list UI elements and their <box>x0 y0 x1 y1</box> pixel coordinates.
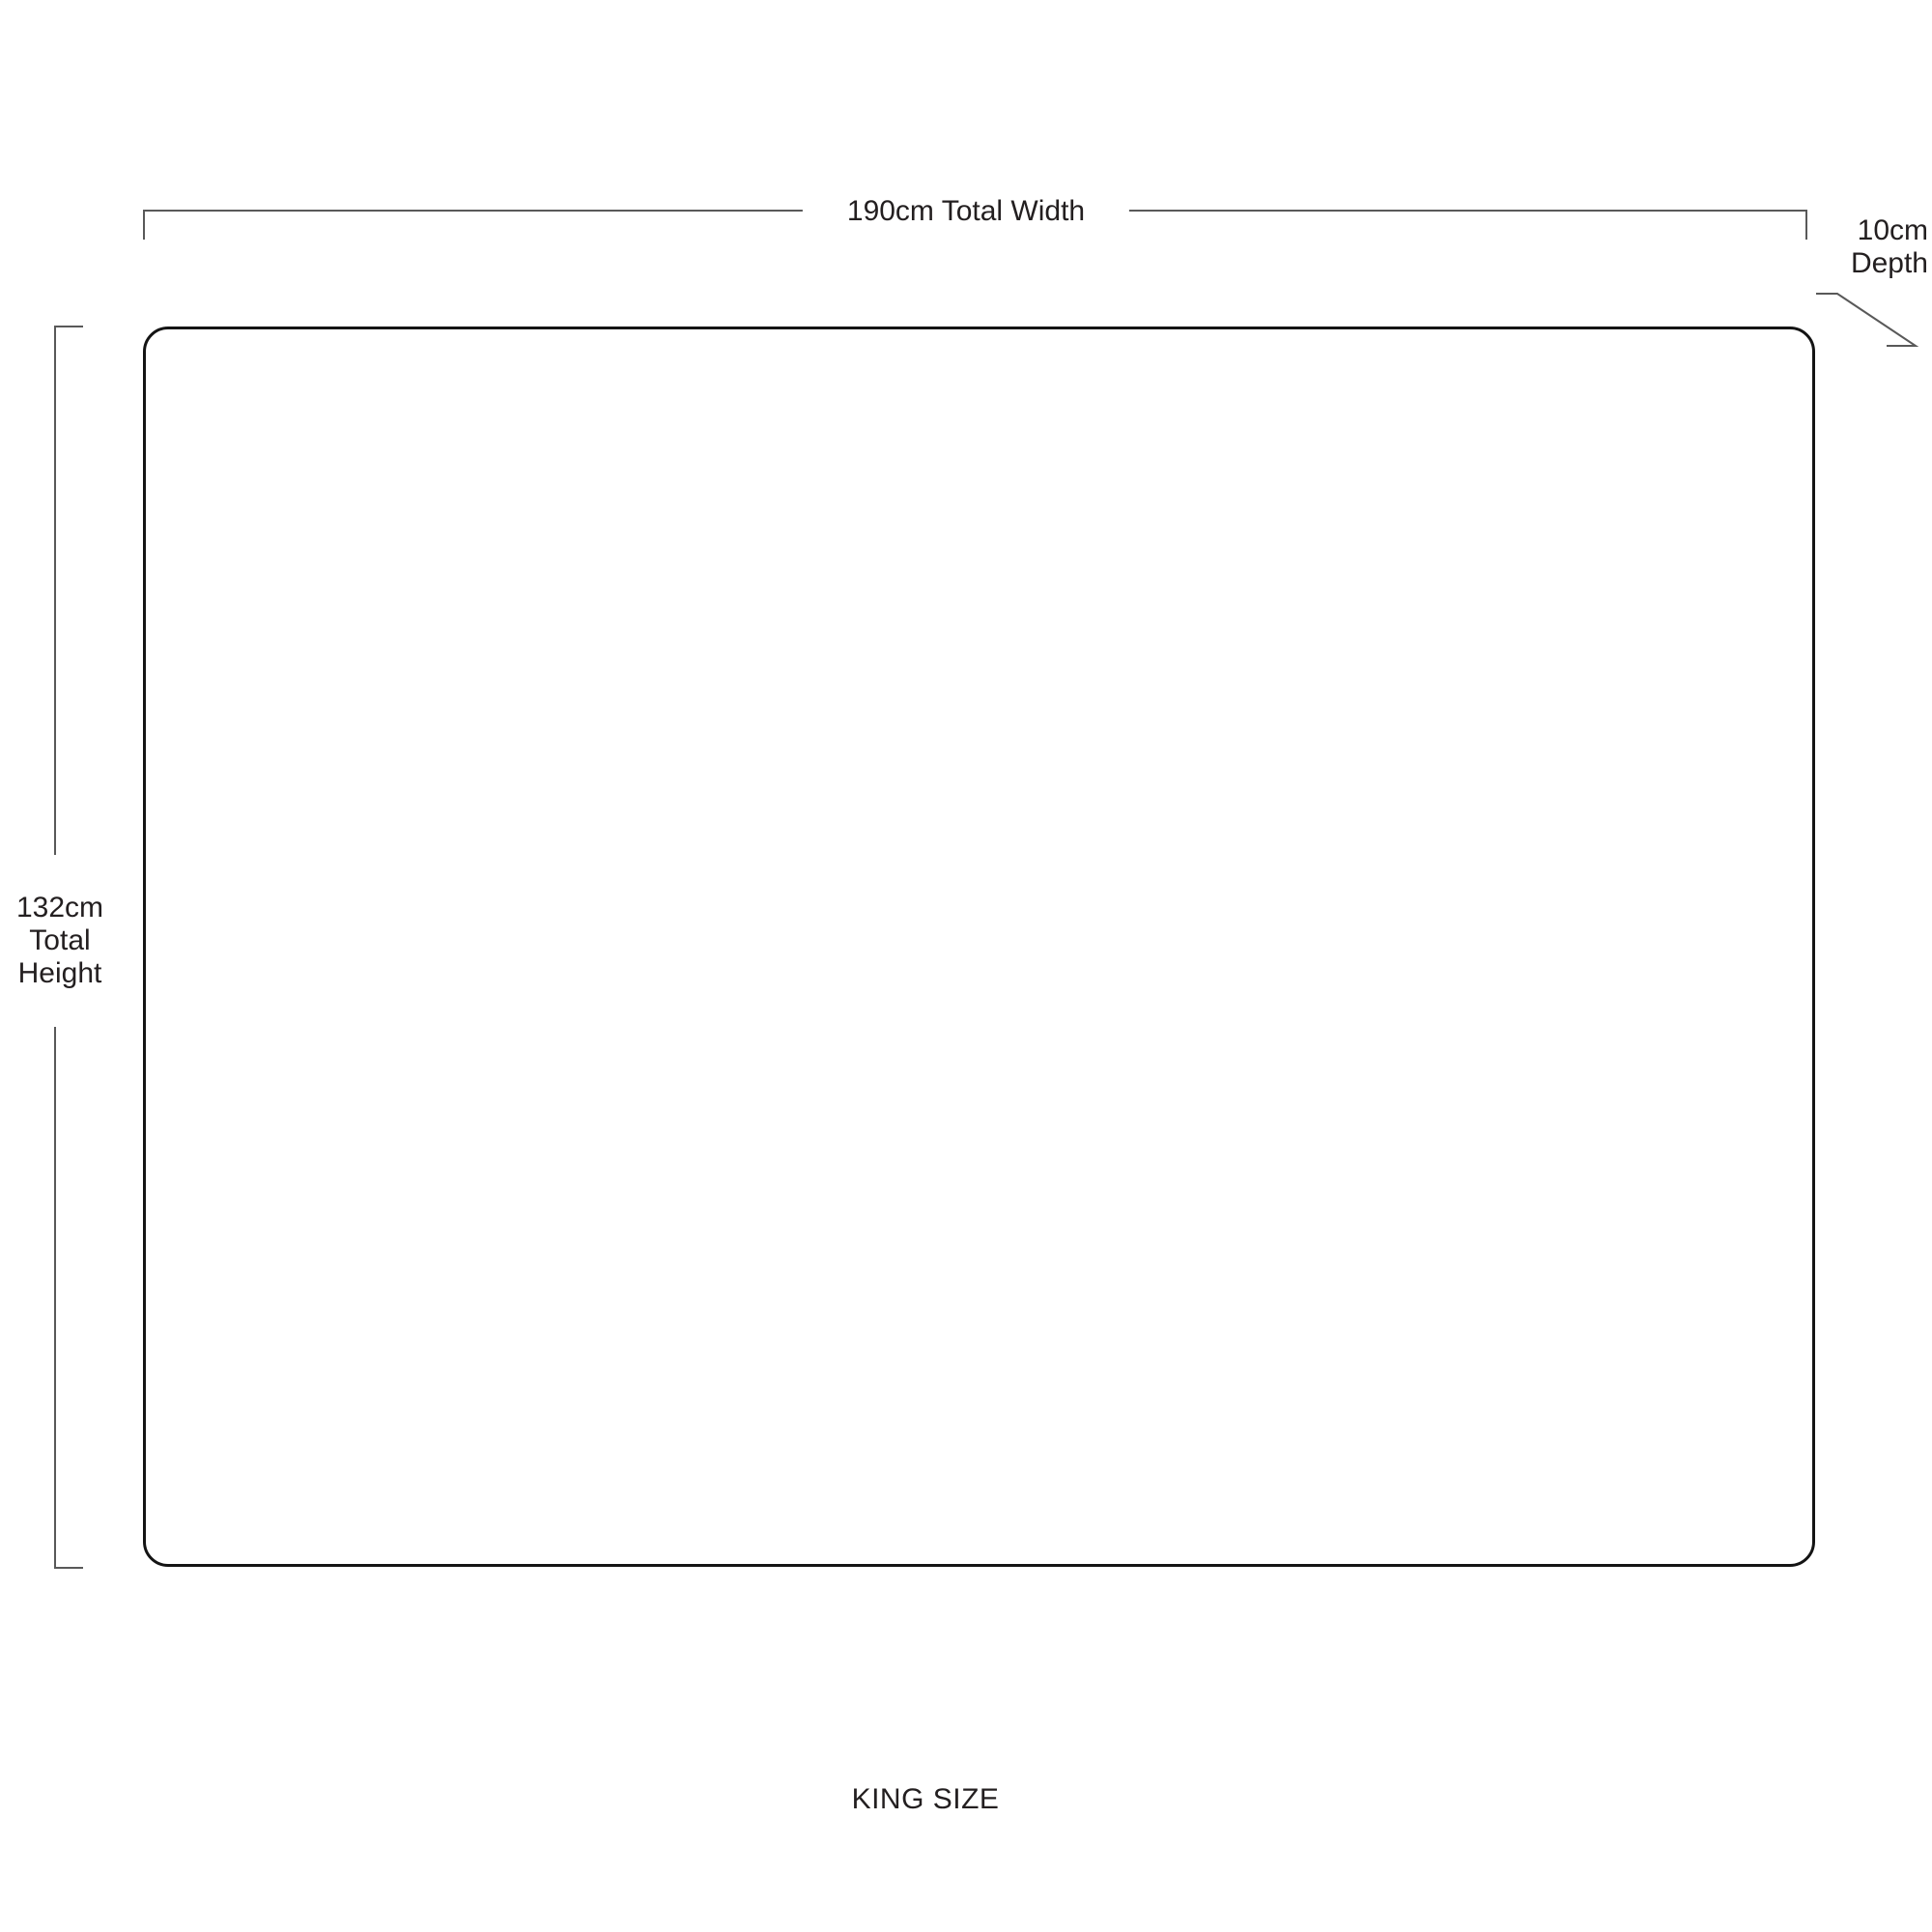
depth-label-line-2: Depth <box>1851 247 1928 280</box>
depth-leader-line <box>1806 285 1932 357</box>
height-label-line-2: Total <box>16 924 103 957</box>
height-label-line-3: Height <box>16 957 103 990</box>
depth-dimension-label: 10cm Depth <box>1851 214 1928 280</box>
dimension-diagram: 190cm Total Width 132cm Total Height 10c… <box>0 0 1932 1932</box>
height-label-line-1: 132cm <box>16 892 103 924</box>
width-dimension-label: 190cm Total Width <box>803 191 1129 232</box>
width-dimension-tick-right <box>1805 210 1807 240</box>
height-dimension-tick-top <box>54 326 83 327</box>
height-dimension-tick-bottom <box>54 1567 83 1569</box>
depth-label-line-1: 10cm <box>1851 214 1928 247</box>
product-outline-rectangle <box>143 327 1815 1567</box>
width-dimension-tick-left <box>143 210 145 240</box>
size-title: KING SIZE <box>852 1783 1000 1816</box>
height-dimension-label: 132cm Total Height <box>5 855 115 1027</box>
